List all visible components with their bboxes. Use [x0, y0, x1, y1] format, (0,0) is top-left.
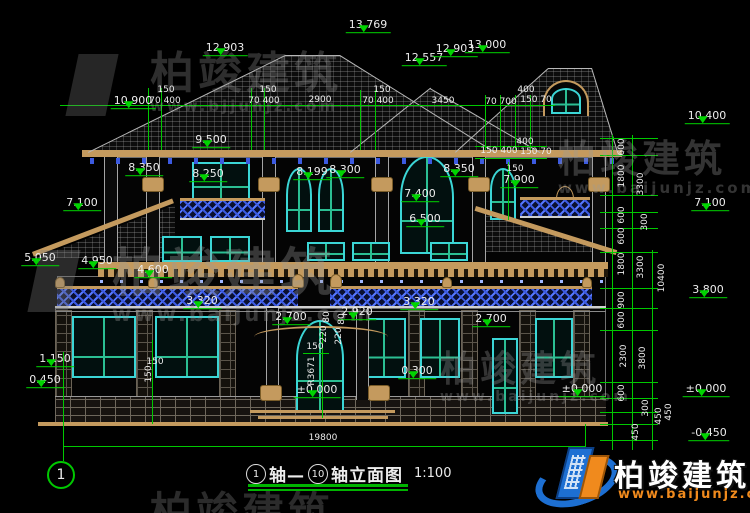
title-scale: 1:100 [414, 466, 451, 481]
window-1f [155, 316, 219, 378]
column-capital [258, 177, 280, 192]
elevation-marker: 8.199 [293, 166, 331, 191]
dimension-label-vertical: 1800 [617, 165, 627, 188]
railing-finial [292, 274, 304, 288]
roof-ridge-line [285, 55, 340, 56]
elevation-marker: 7.900 [500, 174, 538, 199]
elevation-marker: 8.250 [189, 168, 227, 193]
dormer-window [551, 88, 581, 114]
dimension-label: 150 70 [520, 147, 552, 157]
dimension-label: 70 400 [362, 96, 394, 106]
brand-logo: 柏竣建筑 www.baijunjz.com [528, 443, 750, 513]
dimension-label-vertical: 300 [641, 399, 651, 416]
title-axis-bubble-start: 1 [246, 464, 266, 484]
dimension-label-vertical: 80 [337, 313, 347, 324]
stone-pier [519, 310, 536, 398]
elevation-marker: 13.000 [465, 39, 510, 64]
dim-line-roof-right2 [475, 158, 547, 159]
title-axis-bubble-end: 10 [308, 464, 328, 484]
ground-line [38, 422, 608, 426]
dim-col-line [612, 135, 613, 450]
cornice-dots [100, 280, 605, 283]
railing-finial [330, 274, 342, 288]
drawing-title: 1 轴— 10 轴立面图 1:100 [246, 461, 451, 486]
dimension-label-vertical: 300 [640, 213, 650, 230]
dim-tick [600, 440, 658, 441]
cornice-band [98, 262, 608, 269]
dimension-label: 150 [506, 164, 523, 174]
dim-tick [600, 155, 658, 156]
column-capital [588, 177, 610, 192]
elevation-marker: 8.350 [125, 162, 163, 187]
elevation-marker: 2.700 [472, 313, 510, 338]
balcony-railing-3f [180, 198, 265, 220]
title-text-segment1: 轴— [269, 461, 305, 486]
dim-tick [600, 424, 658, 425]
dimension-label: 2900 [309, 95, 332, 105]
elevation-marker: 10.400 [685, 110, 730, 135]
veranda-railing-left [57, 286, 298, 308]
elevation-marker: 4.950 [78, 255, 116, 280]
elevation-marker: 8.350 [440, 163, 478, 188]
dimension-label-vertical: 450 [631, 423, 641, 440]
dimension-label: 19800 [309, 433, 338, 443]
column-capital [371, 177, 393, 192]
dimension-label-vertical: 220 [334, 327, 344, 344]
railing-finial [55, 277, 65, 288]
pilaster [104, 157, 118, 267]
dim-tick [600, 288, 658, 289]
logo-website-url: www.baijunjz.com [618, 487, 750, 502]
elevation-marker: 0.450 [26, 374, 64, 399]
dimension-label: 400 [517, 85, 534, 95]
elevation-marker: 13.769 [346, 19, 391, 44]
dim-col-line [652, 250, 653, 450]
elevation-marker: 6.500 [406, 213, 444, 238]
dimension-label: 70 400 [149, 96, 181, 106]
dimension-label: 400 [516, 137, 533, 147]
elevation-marker: 2.700 [272, 311, 310, 336]
elevation-marker: 7.100 [691, 197, 729, 222]
dim-ext-line [360, 90, 361, 150]
dim-tick [600, 382, 658, 383]
dimension-label-vertical: 3300 [636, 173, 646, 196]
dim-tick [600, 138, 658, 139]
dimension-label-vertical: 150 [144, 365, 154, 382]
balcony-railing-3f-right [520, 197, 590, 218]
window-2f [307, 242, 345, 261]
dim-tick [600, 195, 658, 196]
dimension-label-vertical: 600 [617, 384, 627, 401]
railing-finial [442, 277, 452, 288]
dimension-label-vertical: 600 [617, 206, 627, 223]
dimension-label: 70 700 [485, 97, 517, 107]
dimension-label-vertical: 3300 [636, 256, 646, 279]
elevation-marker: 3.800 [689, 284, 727, 309]
floor-slab-line [55, 306, 606, 308]
dim-line-bottom [63, 446, 585, 447]
dimension-label-vertical: 220 [319, 325, 329, 342]
railing-finial [582, 277, 592, 288]
dimension-label-vertical: 450 [664, 403, 674, 420]
elevation-marker: ±0.000 [294, 384, 341, 409]
watermark-text: 柏竣建筑 [150, 492, 334, 513]
stone-pier [136, 310, 153, 398]
title-text-segment2: 轴立面图 [331, 461, 403, 486]
dimension-label-vertical: 10400 [657, 264, 667, 293]
entry-step [258, 416, 388, 419]
cad-elevation-drawing: 13.76912.90312.55712.90313.00010.90010.4… [0, 0, 750, 513]
window-2f [162, 236, 202, 262]
cornice-dentils [98, 269, 608, 277]
elevation-marker: 7.400 [401, 188, 439, 213]
elevation-marker: 3.320 [183, 295, 221, 320]
stone-pier [219, 310, 236, 398]
dimension-label-vertical: 80 [322, 311, 332, 322]
dimension-label-vertical: 3800 [638, 347, 648, 370]
window-1f [535, 318, 573, 378]
dimension-label-vertical: R3671 [307, 356, 317, 385]
porch-pedestal [368, 385, 390, 401]
title-underline [248, 484, 408, 487]
elevation-marker: 0.300 [398, 365, 436, 390]
dim-tick [600, 330, 658, 331]
axis-ext-line [63, 424, 64, 461]
dimension-label-vertical: 450 [654, 407, 664, 424]
dimension-label-vertical: 2300 [619, 345, 629, 368]
dimension-label-vertical: 600 [617, 227, 627, 244]
dimension-label: 150 400 [480, 146, 517, 156]
dimension-label-vertical: 600 [617, 138, 627, 155]
dimension-label-vertical: 900 [617, 291, 627, 308]
dimension-label-vertical: 600 [617, 311, 627, 328]
elevation-marker: 3.320 [400, 296, 438, 321]
elevation-marker: 7.100 [63, 197, 101, 222]
dim-tick [600, 308, 658, 309]
dimension-label: 150 70 [520, 95, 552, 105]
dimension-label: 150 [373, 85, 390, 95]
elevation-marker: 5.050 [21, 252, 59, 277]
dimension-label: 70 400 [248, 96, 280, 106]
porch-pedestal [260, 385, 282, 401]
watermark: 柏竣建筑 [150, 492, 334, 513]
dim-tick [600, 252, 658, 253]
elevation-marker: 8.300 [326, 164, 364, 189]
axis-bubble: 1 [47, 461, 75, 489]
window-1f [72, 316, 136, 378]
window-2f [210, 236, 250, 262]
dimension-label-vertical: 1800 [617, 253, 627, 276]
dim-col-line [632, 135, 633, 450]
elevation-marker: ±0.000 [683, 383, 730, 408]
dimension-label: 3450 [432, 96, 455, 106]
title-underline-2 [248, 489, 408, 491]
elevation-marker: ±0.000 [559, 383, 606, 408]
side-door [492, 338, 518, 414]
window-2f [430, 242, 468, 261]
dimension-label: 150 [259, 85, 276, 95]
dimension-label: 150 [306, 342, 323, 352]
dim-underline [303, 353, 329, 354]
roof-right-upper [455, 68, 618, 152]
window-2f [352, 242, 390, 261]
dimension-label: 150 [157, 85, 174, 95]
roof-ridge-line [548, 68, 592, 69]
elevation-marker: 12.903 [203, 42, 248, 67]
elevation-marker: 4.600 [134, 264, 172, 289]
elevation-marker: 9.500 [192, 134, 230, 159]
